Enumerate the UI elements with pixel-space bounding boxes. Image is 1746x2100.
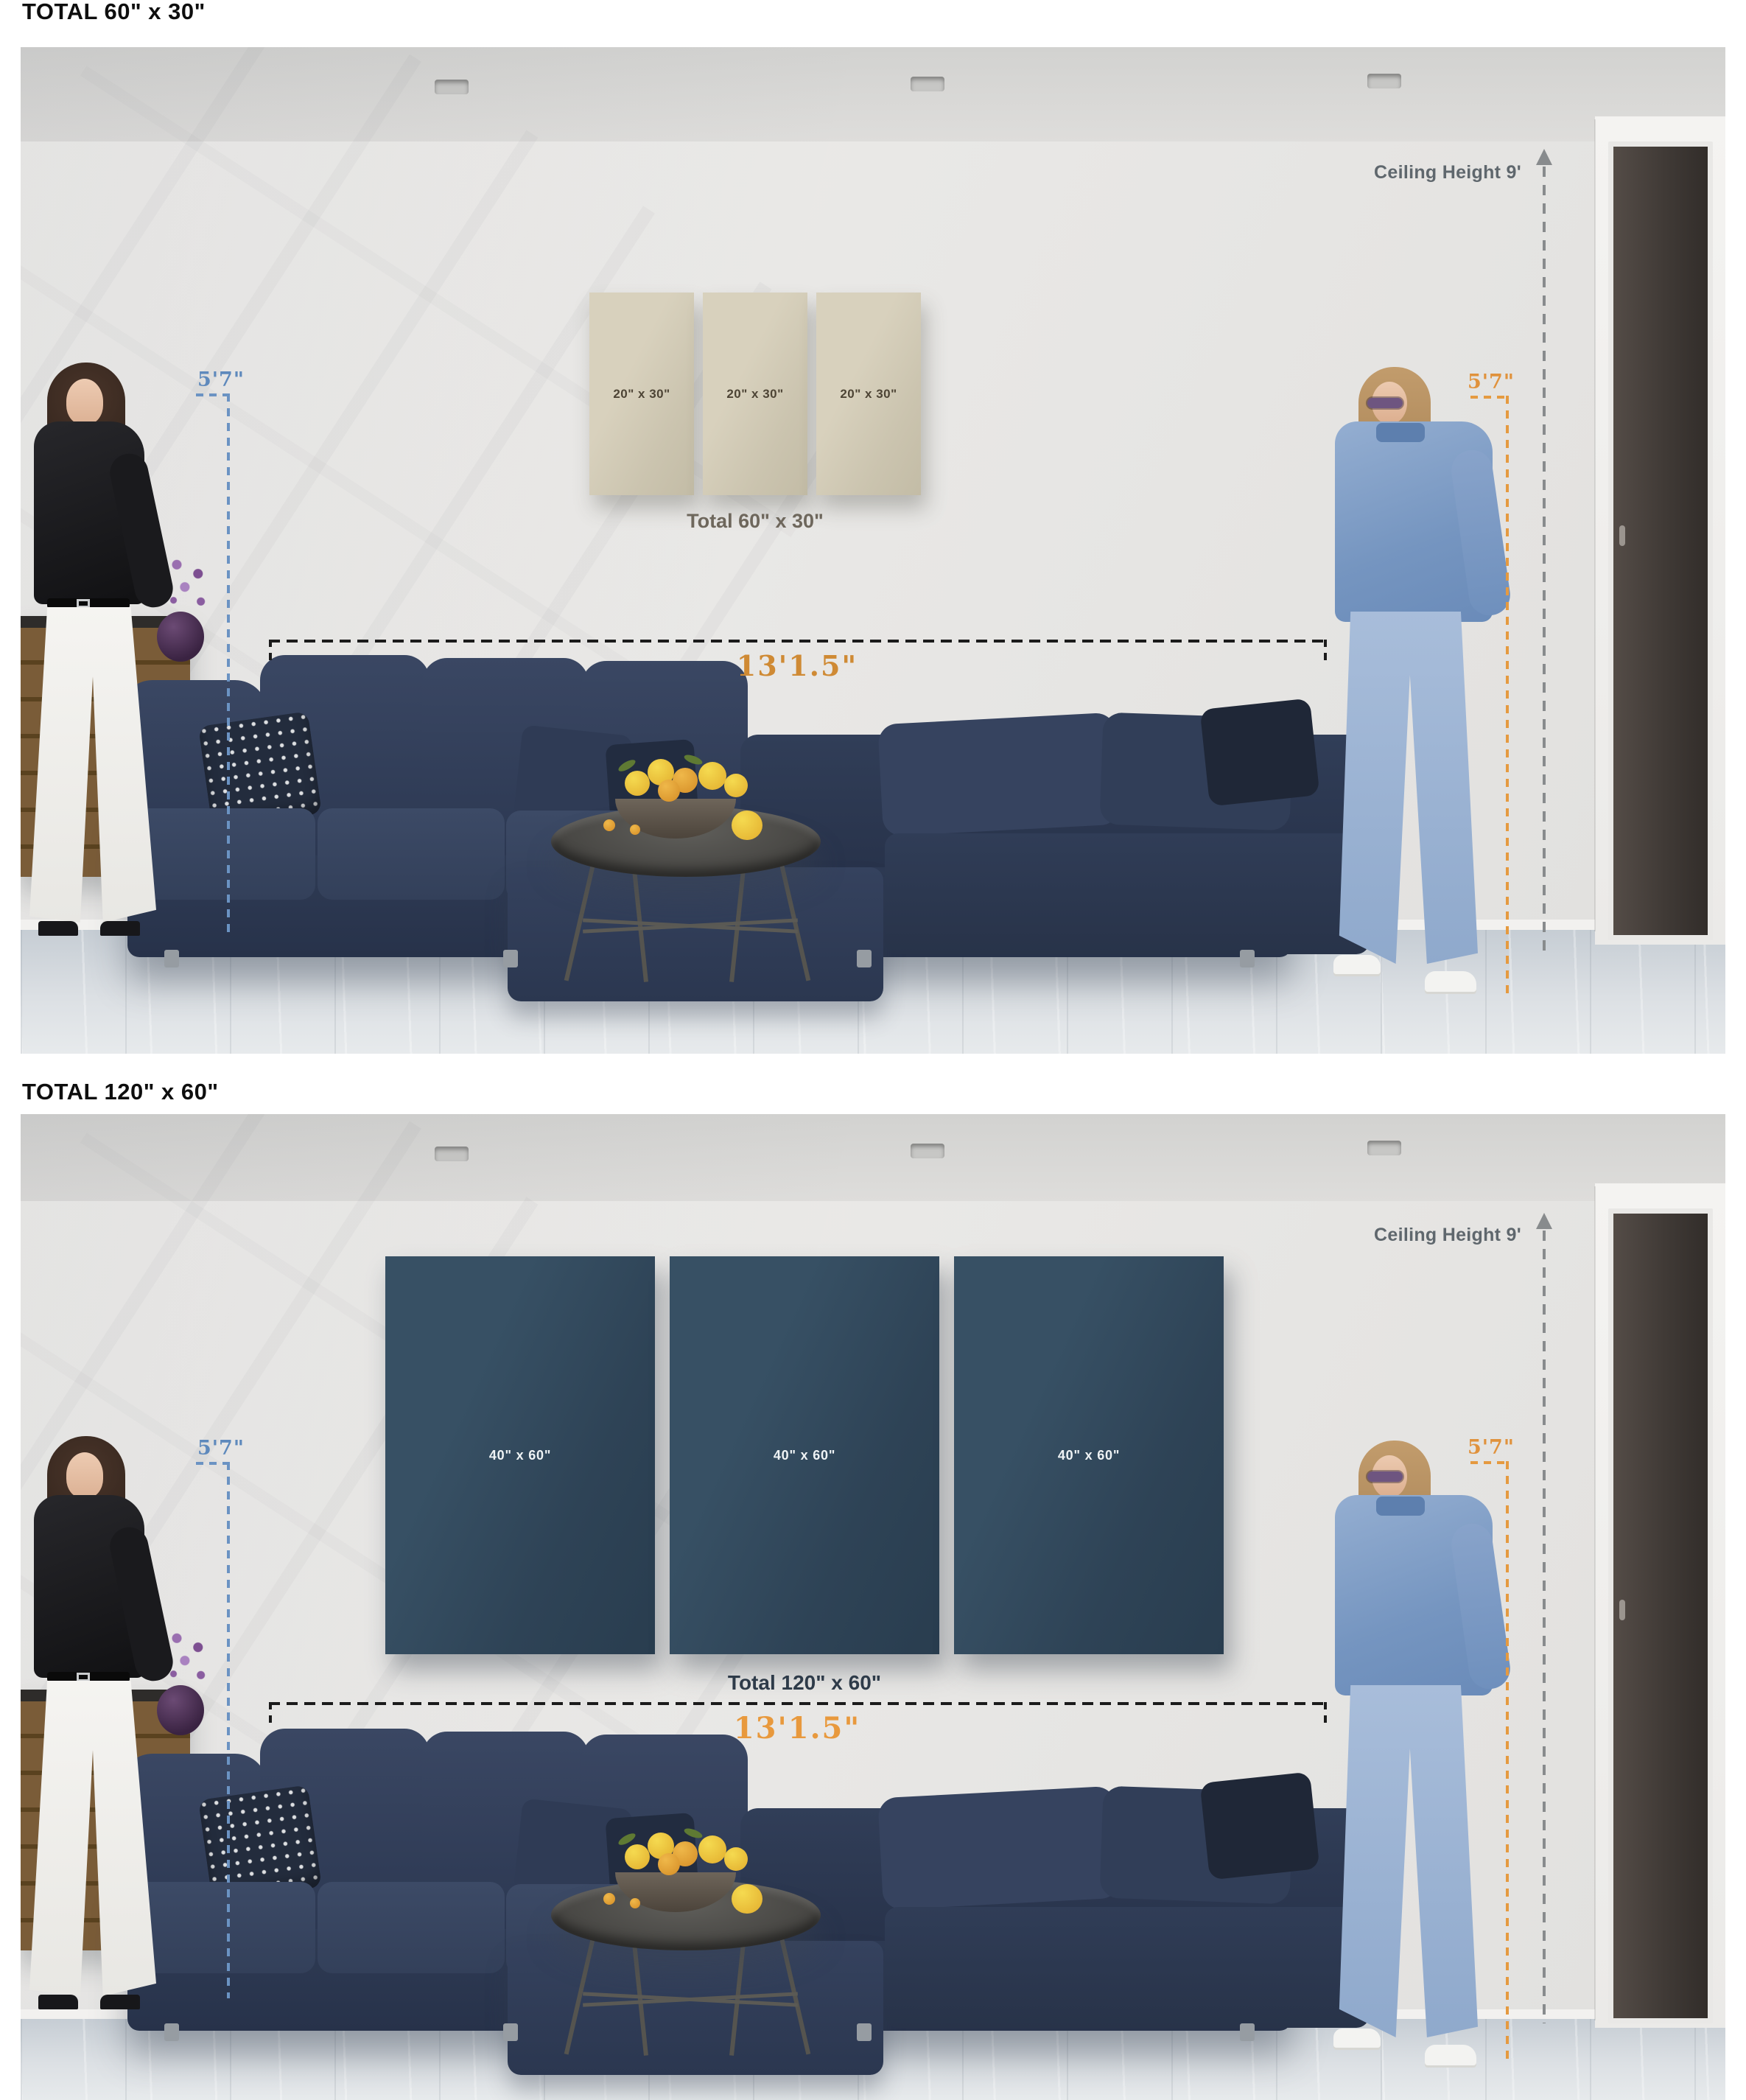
lemon xyxy=(625,771,650,796)
belt-buckle xyxy=(77,1673,90,1681)
lemon xyxy=(732,811,762,840)
height-guide-corner xyxy=(196,1462,230,1465)
coffee-table xyxy=(547,1830,827,2073)
tick xyxy=(269,640,272,663)
lemon xyxy=(698,1835,726,1863)
ceiling-height-arrow xyxy=(1535,1213,1553,2023)
height-guide-line-right xyxy=(1506,396,1509,1000)
shoe xyxy=(100,921,140,936)
person-left xyxy=(28,363,212,937)
furniture-layer xyxy=(21,1121,1725,2100)
sneaker xyxy=(1333,955,1381,974)
figure-2-title: TOTAL 120" x 60" xyxy=(22,1079,219,1105)
person-height-label-left: 5'7" xyxy=(197,368,245,391)
lemon xyxy=(658,1853,680,1875)
white-pants xyxy=(29,607,156,923)
sofa-pillow xyxy=(1200,699,1320,807)
dashed-line xyxy=(269,640,1327,643)
coffee-table xyxy=(547,756,827,999)
ceiling-height-label: Ceiling Height 9' xyxy=(1374,1225,1521,1246)
shoe xyxy=(38,1995,78,2009)
dashed-line xyxy=(1543,167,1546,955)
person-height-label-right: 5'7" xyxy=(1468,371,1515,393)
jacket-collar xyxy=(1376,423,1425,442)
lemon xyxy=(732,1884,762,1914)
height-guide-corner xyxy=(1470,396,1509,399)
person-height-label-left: 5'7" xyxy=(197,1437,245,1460)
belt-buckle xyxy=(77,599,90,608)
jacket-collar xyxy=(1376,1497,1425,1516)
white-pants xyxy=(29,1681,156,1996)
face xyxy=(66,379,103,424)
height-guide-line-left xyxy=(227,1462,230,1998)
furniture-layer xyxy=(21,47,1725,1054)
person-right xyxy=(1314,1441,1535,2079)
dashed-line xyxy=(1543,1231,1546,2023)
height-guide-corner xyxy=(1470,1461,1509,1464)
lemon xyxy=(724,774,748,797)
lemon xyxy=(625,1844,650,1869)
sneaker xyxy=(1425,971,1476,992)
shoe xyxy=(38,921,78,936)
sunglasses xyxy=(1367,398,1403,408)
height-guide-line-right xyxy=(1506,1461,1509,2062)
dashed-line xyxy=(269,1702,1327,1705)
tick xyxy=(1324,640,1327,663)
lemon xyxy=(603,1893,615,1905)
person-height-label-right: 5'7" xyxy=(1468,1436,1515,1459)
sofa-width-label: 13'1.5" xyxy=(650,649,944,682)
lemon xyxy=(658,780,680,802)
sunglasses xyxy=(1367,1471,1403,1482)
shoe xyxy=(100,1995,140,2009)
height-guide-corner xyxy=(196,393,230,396)
room-scene-60x30: 20" x 30" 20" x 30" 20" x 30" Total 60" … xyxy=(21,47,1725,1054)
sneaker xyxy=(1333,2029,1381,2048)
sneaker xyxy=(1425,2045,1476,2065)
arrow-up-icon xyxy=(1536,149,1552,165)
person-left xyxy=(28,1436,212,2011)
face xyxy=(66,1452,103,1498)
size-guide-page: TOTAL 60" x 30" 20" x 30" 20" x 30" 20" … xyxy=(0,0,1746,2100)
ceiling-height-arrow xyxy=(1535,149,1553,955)
lemon xyxy=(698,762,726,790)
tick xyxy=(1324,1702,1327,1726)
room-scene-120x60: 40" x 60" 40" x 60" 40" x 60" Total 120"… xyxy=(21,1114,1725,2100)
lemon xyxy=(630,1898,640,1908)
arrow-up-icon xyxy=(1536,1213,1552,1229)
person-right xyxy=(1314,367,1535,1005)
jeans xyxy=(1336,612,1478,964)
height-guide-line-left xyxy=(227,393,230,937)
sofa-width-label: 13'1.5" xyxy=(650,1711,944,1746)
jeans xyxy=(1336,1685,1478,2037)
figure-1-title: TOTAL 60" x 30" xyxy=(22,0,206,25)
lemon xyxy=(603,819,615,831)
lemon xyxy=(724,1847,748,1871)
ceiling-height-label: Ceiling Height 9' xyxy=(1374,162,1521,183)
tick xyxy=(269,1702,272,1726)
sofa-pillow xyxy=(1200,1772,1320,1880)
lemon xyxy=(630,825,640,835)
